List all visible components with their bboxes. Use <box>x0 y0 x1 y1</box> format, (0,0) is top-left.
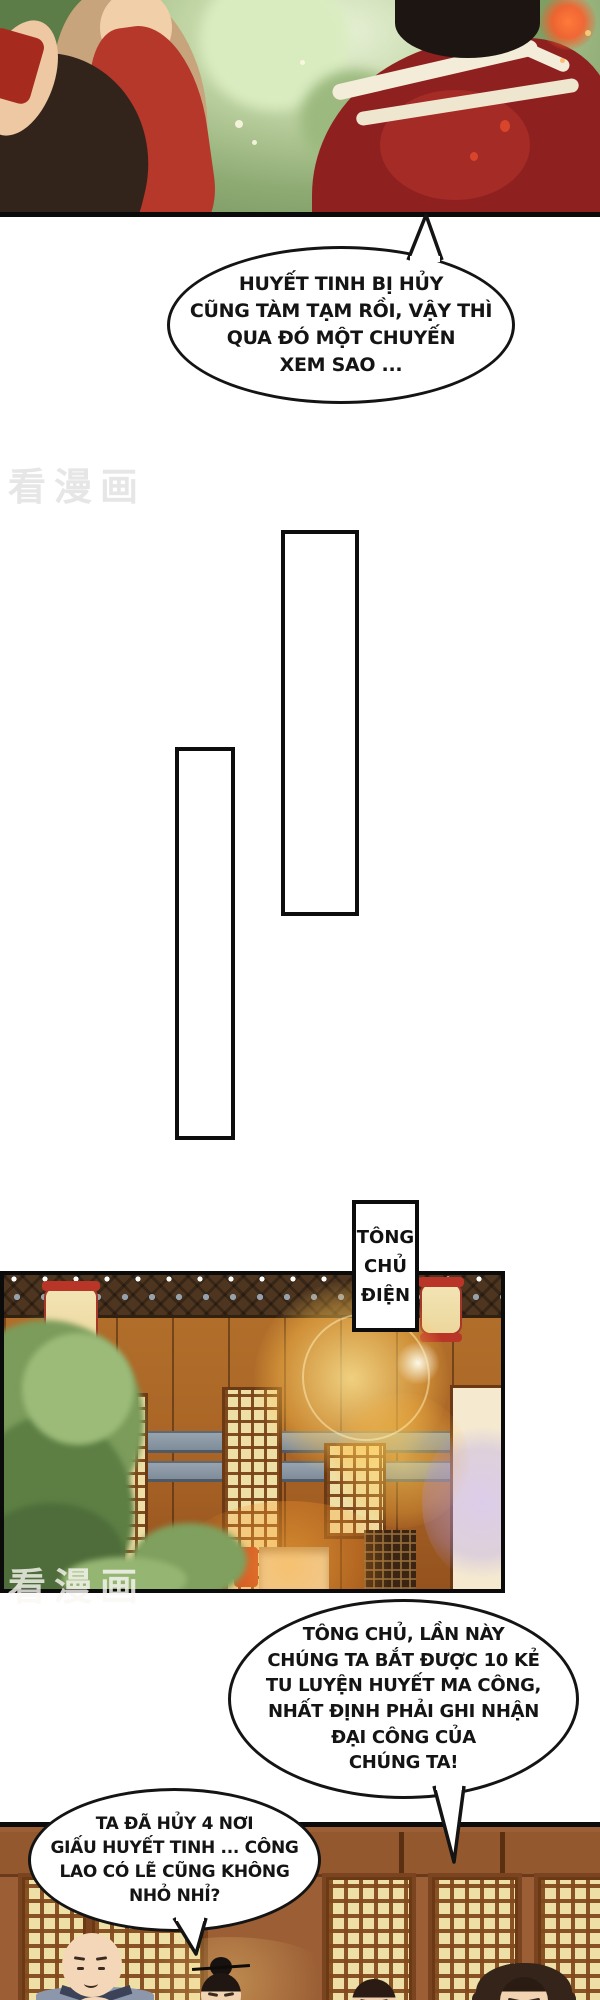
hair-lock <box>558 1991 576 2000</box>
speech-line: NHẤT ĐỊNH PHẢI GHI NHẬN <box>268 1699 539 1725</box>
speech-tail-2 <box>428 1784 472 1866</box>
lattice-door <box>324 1443 386 1539</box>
light-sparkle <box>235 120 243 128</box>
light-sparkle <box>560 58 565 63</box>
speech-line: XEM SAO ... <box>280 352 403 379</box>
stone-beam <box>124 1431 501 1453</box>
speech-tail-3 <box>170 1916 214 1958</box>
sign-tong-chu-dien: TÔNG CHỦ ĐIỆN <box>352 1200 419 1332</box>
topknot-figure <box>190 1955 260 2000</box>
background-face <box>350 1979 400 2000</box>
stone-beam <box>134 1461 501 1482</box>
watermark: 看漫画 <box>8 1556 146 1611</box>
speech-line: CŨNG TÀM TẠM RỒI, VẬY THÌ <box>190 298 492 325</box>
speech-line: ĐẠI CÔNG CỦA <box>331 1725 476 1751</box>
speech-line: CHÚNG TA BẮT ĐƯỢC 10 KẺ <box>267 1648 539 1674</box>
sign-line: TÔNG <box>357 1227 414 1248</box>
red-ornament-glow <box>540 0 596 50</box>
speech-line: GIẤU HUYẾT TINH ... CÔNG <box>50 1836 298 1860</box>
tree-foliage <box>22 1333 134 1445</box>
sign-line: ĐIỆN <box>361 1285 410 1306</box>
speech-line: NHỎ NHỈ? <box>129 1884 220 1908</box>
speech-line: QUA ĐÓ MỘT CHUYẾN <box>227 325 455 352</box>
watermark: 看漫画 <box>8 456 146 511</box>
speech-line: HUYẾT TINH BỊ HỦY <box>239 271 443 298</box>
speech-line: TU LUYỆN HUYẾT MA CÔNG, <box>266 1673 541 1699</box>
topknot-head <box>201 1973 241 2000</box>
speech-line: CHÚNG TA! <box>349 1750 458 1776</box>
light-sparkle <box>300 60 305 65</box>
light-sparkle <box>252 140 257 145</box>
doorway-floor <box>259 1547 329 1589</box>
floating-petal <box>500 120 510 132</box>
monk-eye <box>77 1967 84 1970</box>
speech-line: TÔNG CHỦ, LẦN NÀY <box>303 1622 505 1648</box>
speech-bubble-1: HUYẾT TINH BỊ HỦY CŨNG TÀM TẠM RỒI, VẬY … <box>167 246 515 404</box>
light-sparkle <box>585 30 591 36</box>
head <box>352 1979 396 2000</box>
speech-line: TA ĐÃ HỦY 4 NƠI <box>96 1812 254 1836</box>
speech-bubble-2: TÔNG CHỦ, LẦN NÀY CHÚNG TA BẮT ĐƯỢC 10 K… <box>228 1599 579 1799</box>
lantern-icon <box>420 1283 462 1335</box>
lattice-door <box>450 1385 505 1593</box>
dark-lattice-screen <box>364 1530 416 1589</box>
monk-figure <box>30 1927 160 2000</box>
comic-page: HUYẾT TINH BỊ HỦY CŨNG TÀM TẠM RỒI, VẬY … <box>0 0 600 2000</box>
speech-bubble-3: TA ĐÃ HỦY 4 NƠI GIẤU HUYẾT TINH ... CÔNG… <box>28 1788 321 1932</box>
empty-panel-1 <box>281 530 359 916</box>
empty-panel-2 <box>175 747 235 1140</box>
monk-mouth <box>84 1979 98 1988</box>
palace-art-panel <box>0 1271 505 1593</box>
speech-line: LAO CÓ LẼ CŨNG KHÔNG <box>60 1860 290 1884</box>
top-art-panel <box>0 0 600 217</box>
monk-eye <box>98 1967 105 1970</box>
sign-line: CHỦ <box>364 1256 407 1277</box>
long-hair-figure <box>470 1955 580 2000</box>
hair-lock <box>472 1991 490 2000</box>
floating-petal <box>470 152 478 161</box>
speech-tail-1 <box>398 212 452 262</box>
